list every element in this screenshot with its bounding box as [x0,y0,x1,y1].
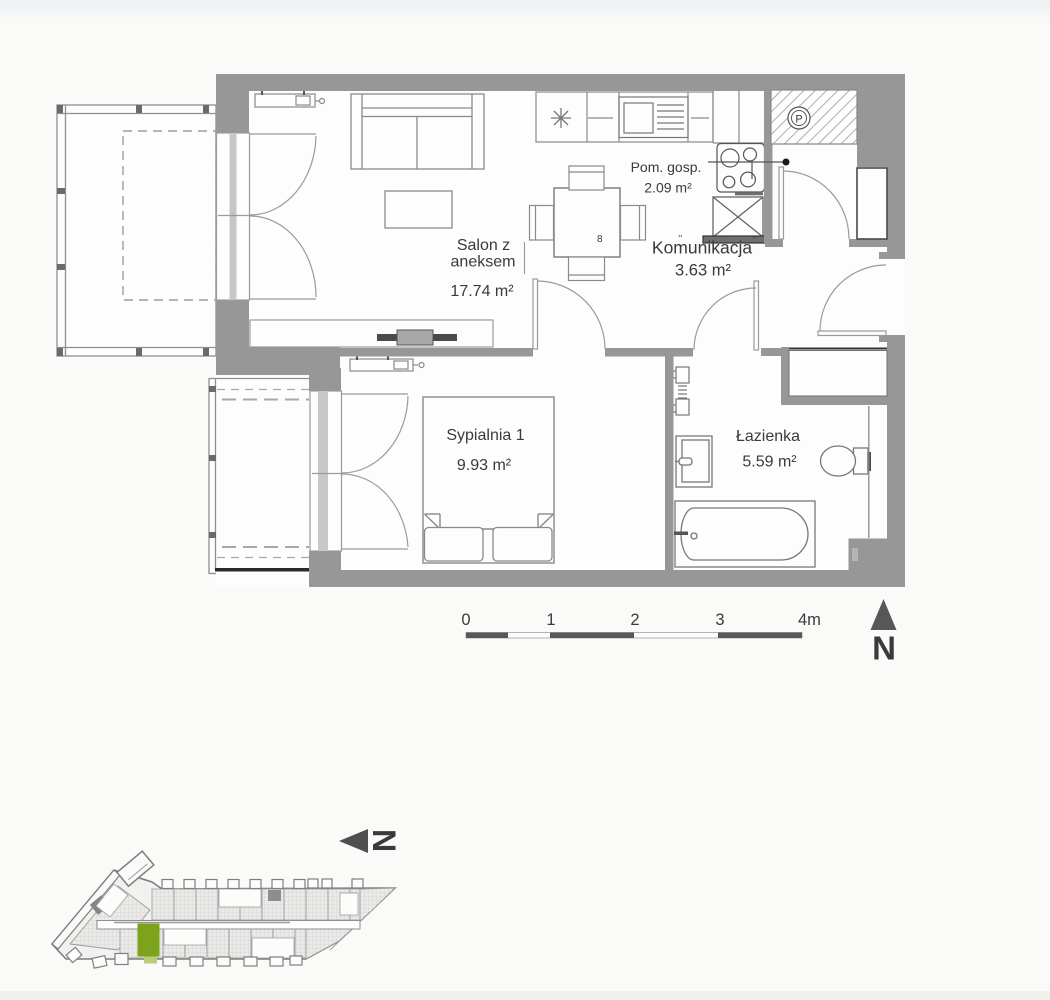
svg-text:3: 3 [715,611,724,629]
svg-text:0: 0 [461,611,470,629]
svg-text:Pom. gosp.: Pom. gosp. [631,159,702,175]
svg-text:8: 8 [597,234,603,245]
svg-text:9.93 m²: 9.93 m² [457,457,512,474]
svg-text:17.74 m²: 17.74 m² [450,283,514,300]
svg-text:3.63 m²: 3.63 m² [675,262,731,280]
svg-text:’’: ’’ [752,235,756,246]
svg-text:’’: ’’ [678,234,682,245]
svg-text:Komunikacja: Komunikacja [652,238,752,258]
svg-text:Łazienka: Łazienka [736,428,800,445]
svg-text:4m: 4m [798,611,821,629]
svg-text:2: 2 [630,611,639,629]
svg-text:5.59 m²: 5.59 m² [742,454,797,471]
svg-text:N: N [366,829,402,852]
svg-text:P: P [795,114,802,126]
svg-text:aneksem: aneksem [451,254,516,271]
svg-text:N: N [872,630,896,667]
svg-text:1: 1 [546,611,555,629]
svg-text:Salon z: Salon z [457,237,510,254]
svg-text:2.09 m²: 2.09 m² [644,180,692,196]
svg-text:Sypialnia 1: Sypialnia 1 [446,427,524,444]
